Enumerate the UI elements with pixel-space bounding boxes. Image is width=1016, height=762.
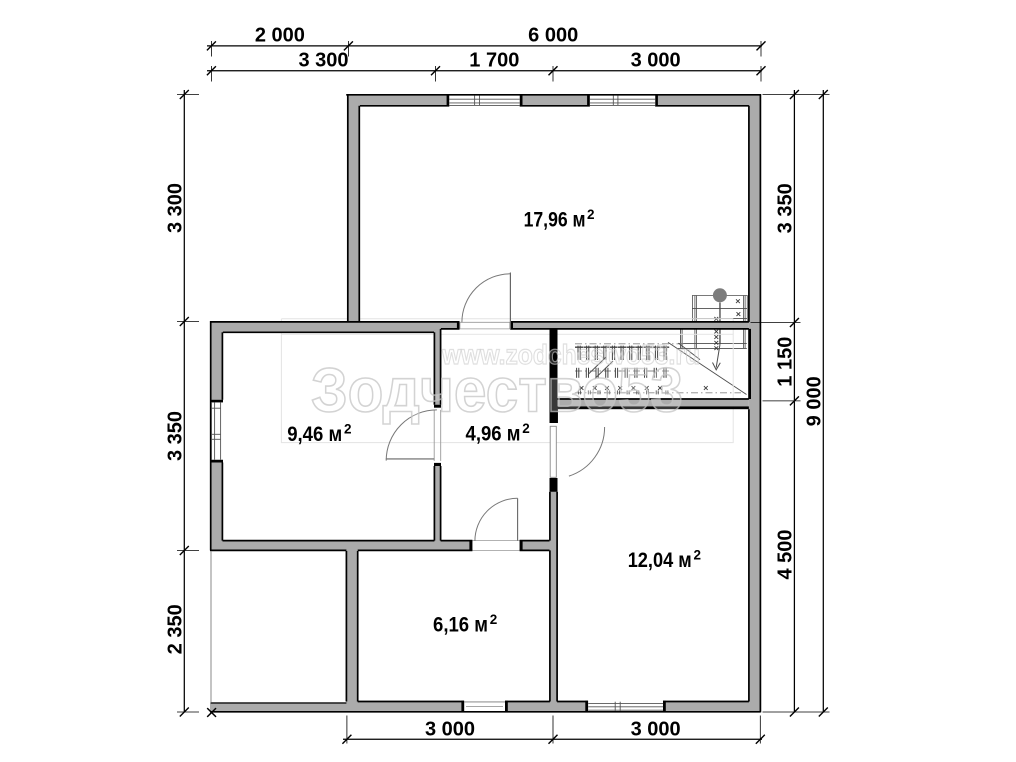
svg-text:3 300: 3 300: [298, 50, 348, 72]
svg-text:3 000: 3 000: [631, 719, 681, 741]
svg-text:3 000: 3 000: [631, 50, 681, 72]
svg-text:9,46 м: 9,46 м: [287, 422, 342, 446]
svg-text:6,16 м: 6,16 м: [433, 613, 488, 637]
svg-text:17,96 м: 17,96 м: [524, 208, 586, 232]
svg-text:1 700: 1 700: [469, 50, 519, 72]
svg-text:2: 2: [490, 612, 498, 627]
svg-text:2 000: 2 000: [255, 25, 305, 47]
svg-text:6 000: 6 000: [528, 25, 578, 47]
svg-text:9 000: 9 000: [804, 376, 826, 426]
svg-text:3 000: 3 000: [425, 719, 475, 741]
svg-text:2: 2: [344, 422, 352, 437]
svg-text:1 150: 1 150: [775, 337, 797, 387]
svg-text:4 500: 4 500: [775, 529, 797, 579]
svg-text:3 300: 3 300: [165, 183, 187, 233]
svg-text:4,96 м: 4,96 м: [466, 422, 521, 446]
svg-text:2: 2: [522, 421, 530, 436]
svg-text:2: 2: [694, 548, 702, 563]
svg-text:3 350: 3 350: [775, 183, 797, 233]
svg-text:2 350: 2 350: [165, 604, 187, 654]
svg-text:12,04 м: 12,04 м: [628, 548, 692, 572]
svg-text:3 350: 3 350: [165, 411, 187, 461]
svg-text:2: 2: [587, 207, 595, 222]
svg-text:Зодчество53: Зодчество53: [311, 357, 683, 426]
